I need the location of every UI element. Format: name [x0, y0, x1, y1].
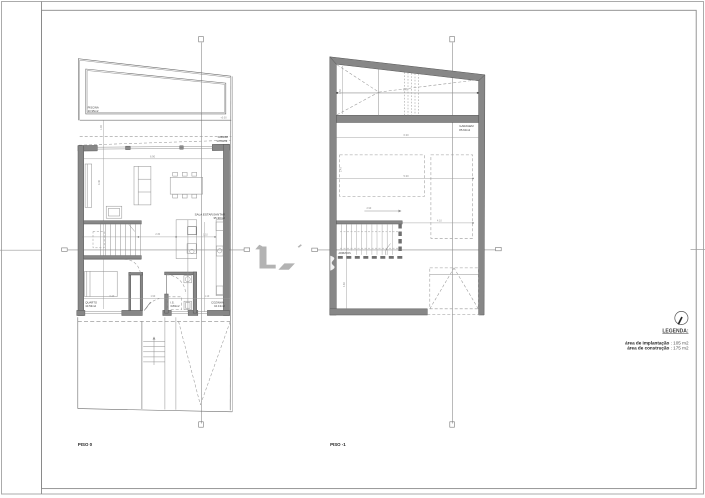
svg-text:85.60m2: 85.60m2 [459, 128, 470, 132]
svg-text:PISO -1: PISO -1 [330, 442, 346, 447]
svg-text:5.30: 5.30 [404, 174, 410, 178]
svg-text:ARRUMOS: ARRUMOS [339, 252, 352, 255]
svg-text:+0.00: +0.00 [221, 117, 228, 120]
svg-text:10.13m2: 10.13m2 [214, 304, 225, 308]
svg-text:13.60m2: 13.60m2 [216, 139, 227, 143]
svg-text:4.80: 4.80 [343, 282, 346, 287]
svg-text:4.10: 4.10 [437, 220, 442, 223]
svg-text:1.00: 1.00 [100, 125, 103, 130]
svg-text:PISO 0: PISO 0 [78, 442, 93, 447]
svg-text:2.40: 2.40 [340, 167, 343, 172]
svg-text:0.40: 0.40 [110, 295, 115, 298]
svg-text:1.90: 1.90 [151, 295, 156, 298]
svg-text:6.40: 6.40 [403, 89, 408, 92]
svg-text:20.95m2: 20.95m2 [88, 109, 99, 113]
svg-text:4.40: 4.40 [97, 179, 101, 185]
svg-text:1.50: 1.50 [339, 89, 342, 94]
svg-text:2.90: 2.90 [367, 207, 372, 210]
svg-text:10.53m2: 10.53m2 [85, 304, 96, 308]
svg-text:1.10: 1.10 [203, 233, 208, 236]
svg-text:LEGENDA:: LEGENDA: [662, 328, 688, 334]
svg-text:área de construção : 175 m2: área de construção : 175 m2 [627, 345, 689, 350]
svg-text:3.80m2: 3.80m2 [170, 304, 180, 308]
svg-text:35.30m2: 35.30m2 [213, 216, 225, 220]
svg-text:6.90: 6.90 [150, 154, 156, 158]
svg-text:2.30: 2.30 [155, 233, 160, 236]
svg-text:1.10: 1.10 [205, 295, 210, 298]
svg-text:6.30: 6.30 [404, 133, 410, 137]
